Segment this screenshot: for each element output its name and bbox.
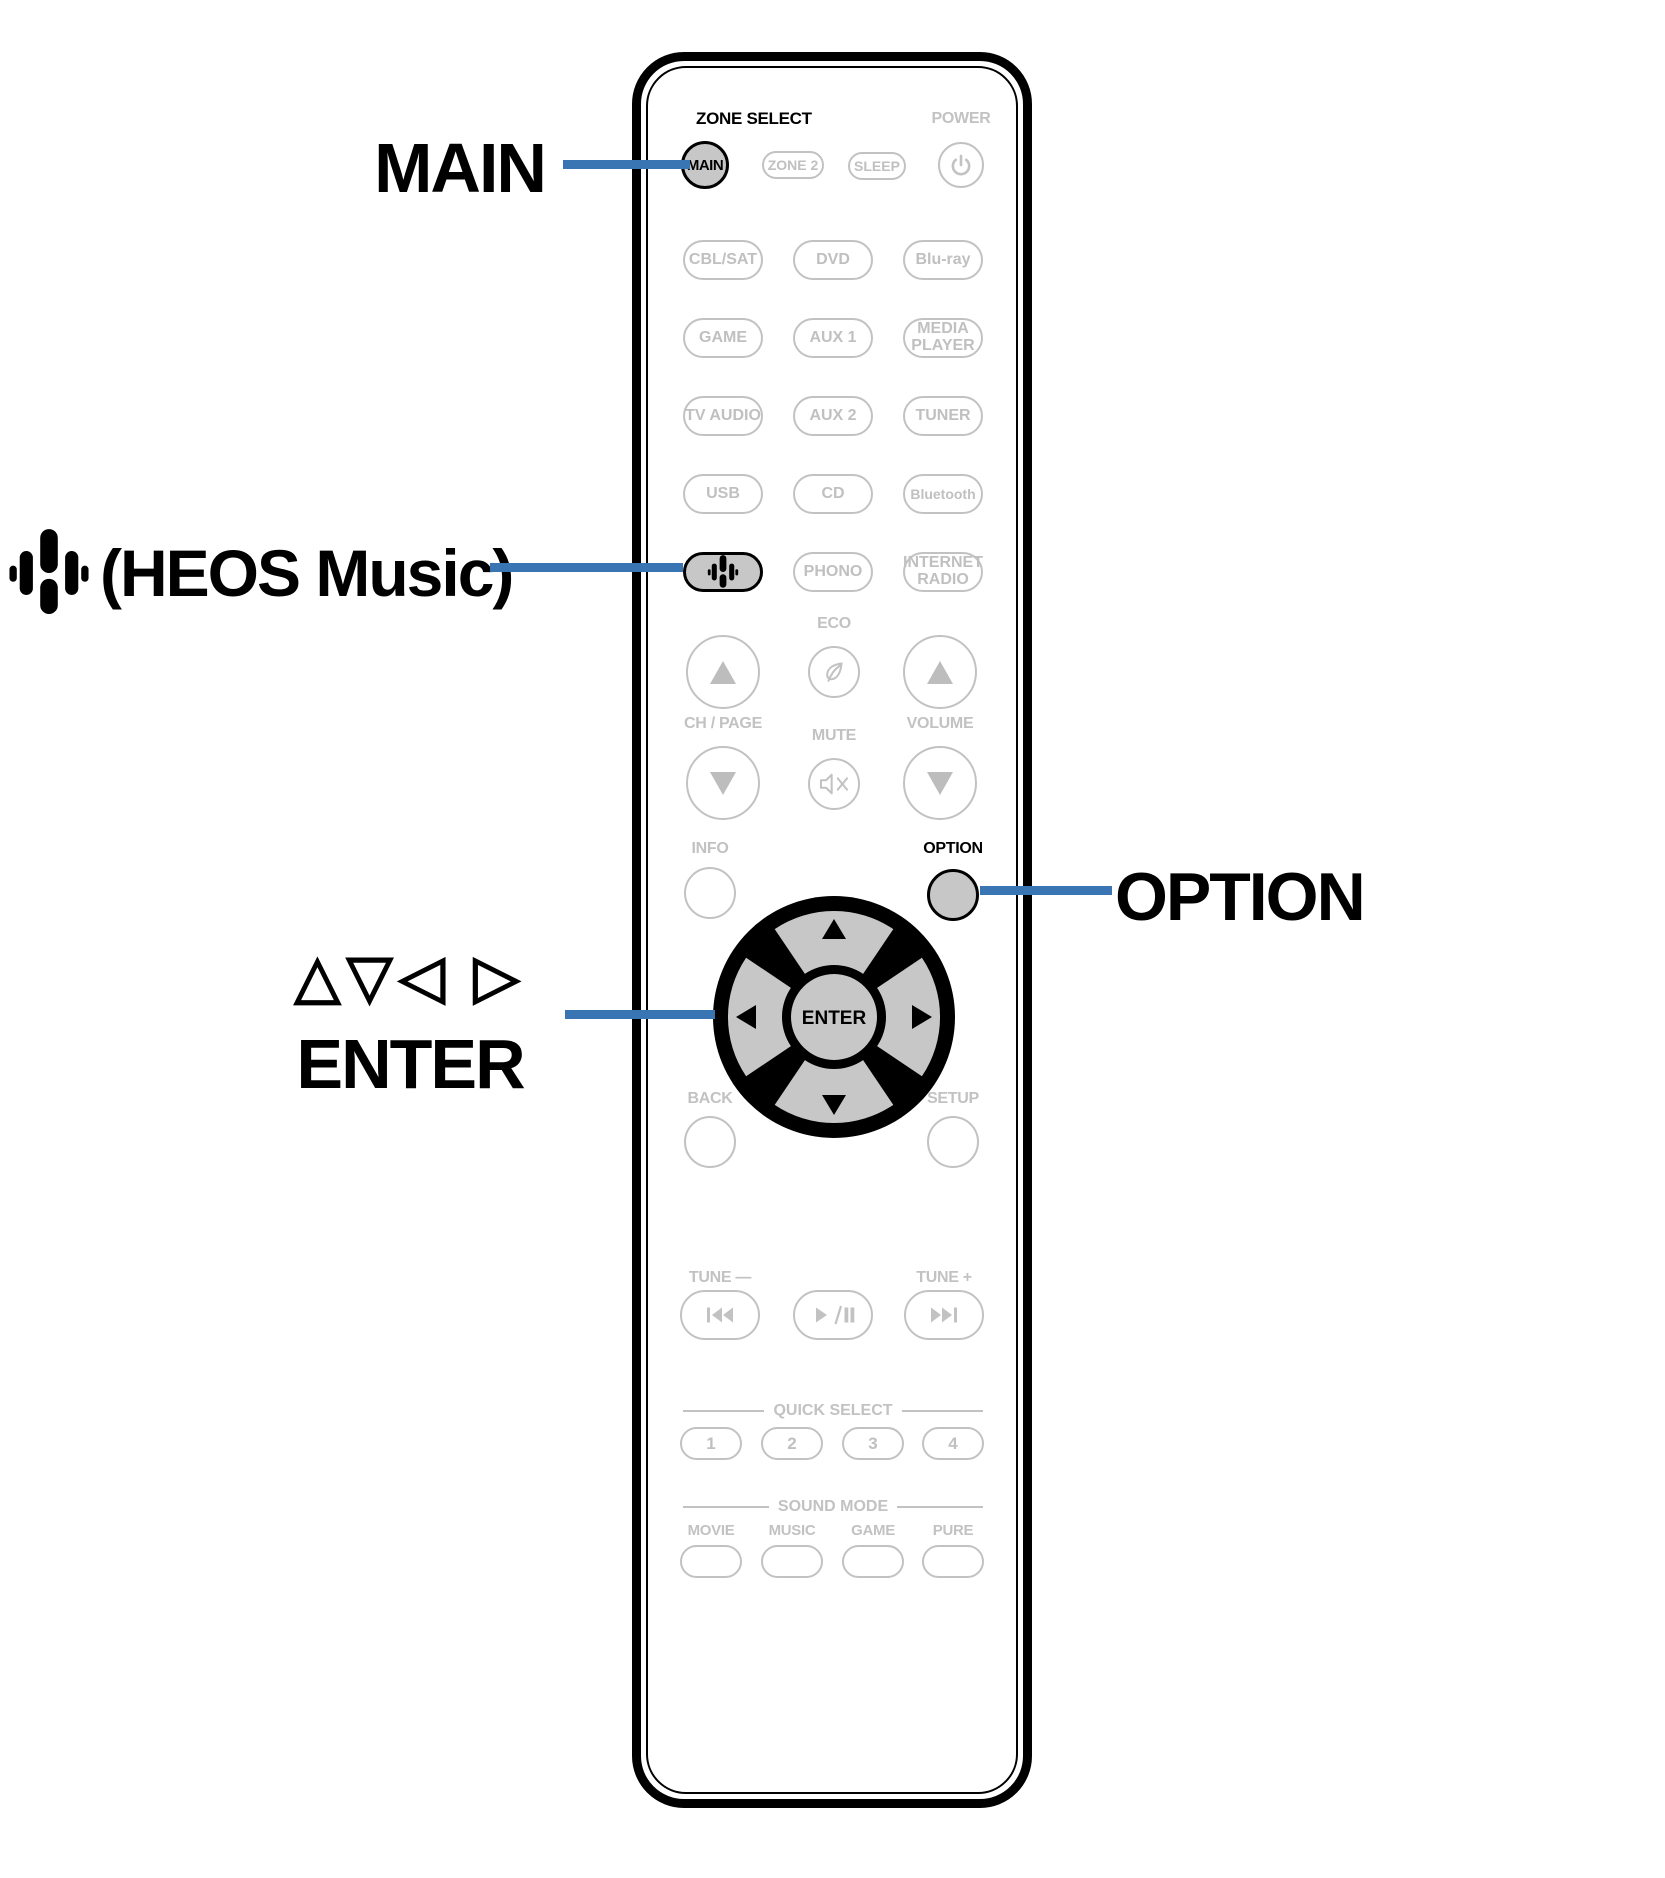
info-label: INFO (670, 840, 750, 858)
source-button-tv-audio[interactable]: TV AUDIO (683, 396, 763, 436)
music-label: MUSIC (761, 1522, 823, 1539)
up-arrow-icon (927, 661, 953, 684)
callout-heos-label: (HEOS Music) (8, 526, 512, 620)
source-button-usb[interactable]: USB (683, 474, 763, 514)
header-line (897, 1506, 983, 1509)
source-button-bluetooth[interactable]: Bluetooth (903, 474, 983, 514)
source-button-phono[interactable]: PHONO (793, 552, 873, 592)
setup-label: SETUP (913, 1090, 993, 1108)
down-arrow-icon (710, 772, 736, 795)
source-button-cd[interactable]: CD (793, 474, 873, 514)
skip-forward-icon (924, 1304, 964, 1326)
sound-mode-movie-button[interactable] (680, 1545, 742, 1578)
callout-cursor-triangles: △▽◁ ▷ (255, 942, 565, 1012)
callout-line-main (563, 160, 690, 169)
callout-line-heos (490, 563, 683, 572)
source-button-dvd[interactable]: DVD (793, 240, 873, 280)
eco-leaf-icon (819, 657, 849, 687)
back-label: BACK (670, 1090, 750, 1108)
tune-plus-label: TUNE + (904, 1269, 984, 1287)
skip-forward-button[interactable] (904, 1290, 984, 1340)
enter-button-label: ENTER (802, 1008, 867, 1029)
volume-down-button[interactable] (903, 746, 977, 820)
ch-page-label: CH / PAGE (683, 715, 763, 733)
zone2-button[interactable]: ZONE 2 (762, 151, 824, 179)
channel-up-button[interactable] (686, 635, 760, 709)
heos-icon (702, 554, 744, 590)
source-button-game[interactable]: GAME (683, 318, 763, 358)
skip-back-icon (700, 1304, 740, 1326)
volume-up-button[interactable] (903, 635, 977, 709)
callout-line-enter (565, 1010, 715, 1019)
sound-mode-game-button[interactable] (842, 1545, 904, 1578)
source-button-internet-radio[interactable]: INTERNET RADIO (903, 552, 983, 592)
source-button-aux2[interactable]: AUX 2 (793, 396, 873, 436)
quick-select-4-button[interactable]: 4 (922, 1427, 984, 1460)
source-button-blu-ray[interactable]: Blu-ray (903, 240, 983, 280)
header-line (683, 1506, 769, 1509)
callout-main-label: MAIN (250, 128, 545, 208)
eco-label: ECO (794, 615, 874, 633)
eco-button[interactable] (808, 646, 860, 698)
back-button[interactable] (684, 1116, 736, 1168)
source-button-tuner[interactable]: TUNER (903, 396, 983, 436)
sound-mode-music-button[interactable] (761, 1545, 823, 1578)
sound-mode-label: SOUND MODE (778, 1498, 888, 1516)
remote-control: ZONE SELECT POWER MAIN ZONE 2 SLEEP CBL/… (632, 52, 1032, 1808)
play-pause-button[interactable] (793, 1290, 873, 1340)
power-button[interactable] (938, 142, 984, 188)
movie-label: MOVIE (680, 1522, 742, 1539)
source-button-media-player[interactable]: MEDIA PLAYER (903, 318, 983, 358)
quick-select-label: QUICK SELECT (773, 1402, 892, 1420)
power-label: POWER (921, 110, 1001, 128)
option-label: OPTION (913, 840, 993, 858)
up-arrow-icon (710, 661, 736, 684)
callout-option-label: OPTION (1115, 858, 1364, 936)
mute-label: MUTE (794, 727, 874, 745)
skip-back-button[interactable] (680, 1290, 760, 1340)
setup-button[interactable] (927, 1116, 979, 1168)
callout-enter-label: ENTER (255, 1024, 565, 1104)
header-line (902, 1410, 983, 1413)
callout-line-option (980, 886, 1112, 895)
down-arrow-icon (927, 772, 953, 795)
play-pause-icon (810, 1304, 856, 1326)
manual-diagram-page: ZONE SELECT POWER MAIN ZONE 2 SLEEP CBL/… (0, 0, 1665, 1878)
mute-icon (817, 770, 851, 798)
callout-cursor-enter: △▽◁ ▷ ENTER (255, 942, 565, 1104)
source-buttons: CBL/SAT DVD Blu-ray GAME AUX 1 MEDIA PLA… (683, 240, 983, 592)
tune-minus-label: TUNE — (680, 1269, 760, 1287)
volume-label: VOLUME (900, 715, 980, 733)
quick-select-header: QUICK SELECT (683, 1402, 983, 1420)
callout-heos-text: (HEOS Music) (100, 535, 512, 611)
zone-select-label: ZONE SELECT (696, 109, 812, 129)
game-label: GAME (842, 1522, 904, 1539)
source-button-aux1[interactable]: AUX 1 (793, 318, 873, 358)
quick-select-1-button[interactable]: 1 (680, 1427, 742, 1460)
sound-mode-pure-button[interactable] (922, 1545, 984, 1578)
mute-button[interactable] (808, 758, 860, 810)
power-icon (948, 152, 974, 178)
heos-icon (8, 526, 90, 620)
header-line (683, 1410, 764, 1413)
sleep-button[interactable]: SLEEP (848, 152, 906, 180)
channel-down-button[interactable] (686, 746, 760, 820)
quick-select-3-button[interactable]: 3 (842, 1427, 904, 1460)
sound-mode-header: SOUND MODE (683, 1498, 983, 1516)
pure-label: PURE (922, 1522, 984, 1539)
heos-music-button[interactable] (683, 552, 763, 592)
quick-select-2-button[interactable]: 2 (761, 1427, 823, 1460)
source-button-cbl-sat[interactable]: CBL/SAT (683, 240, 763, 280)
